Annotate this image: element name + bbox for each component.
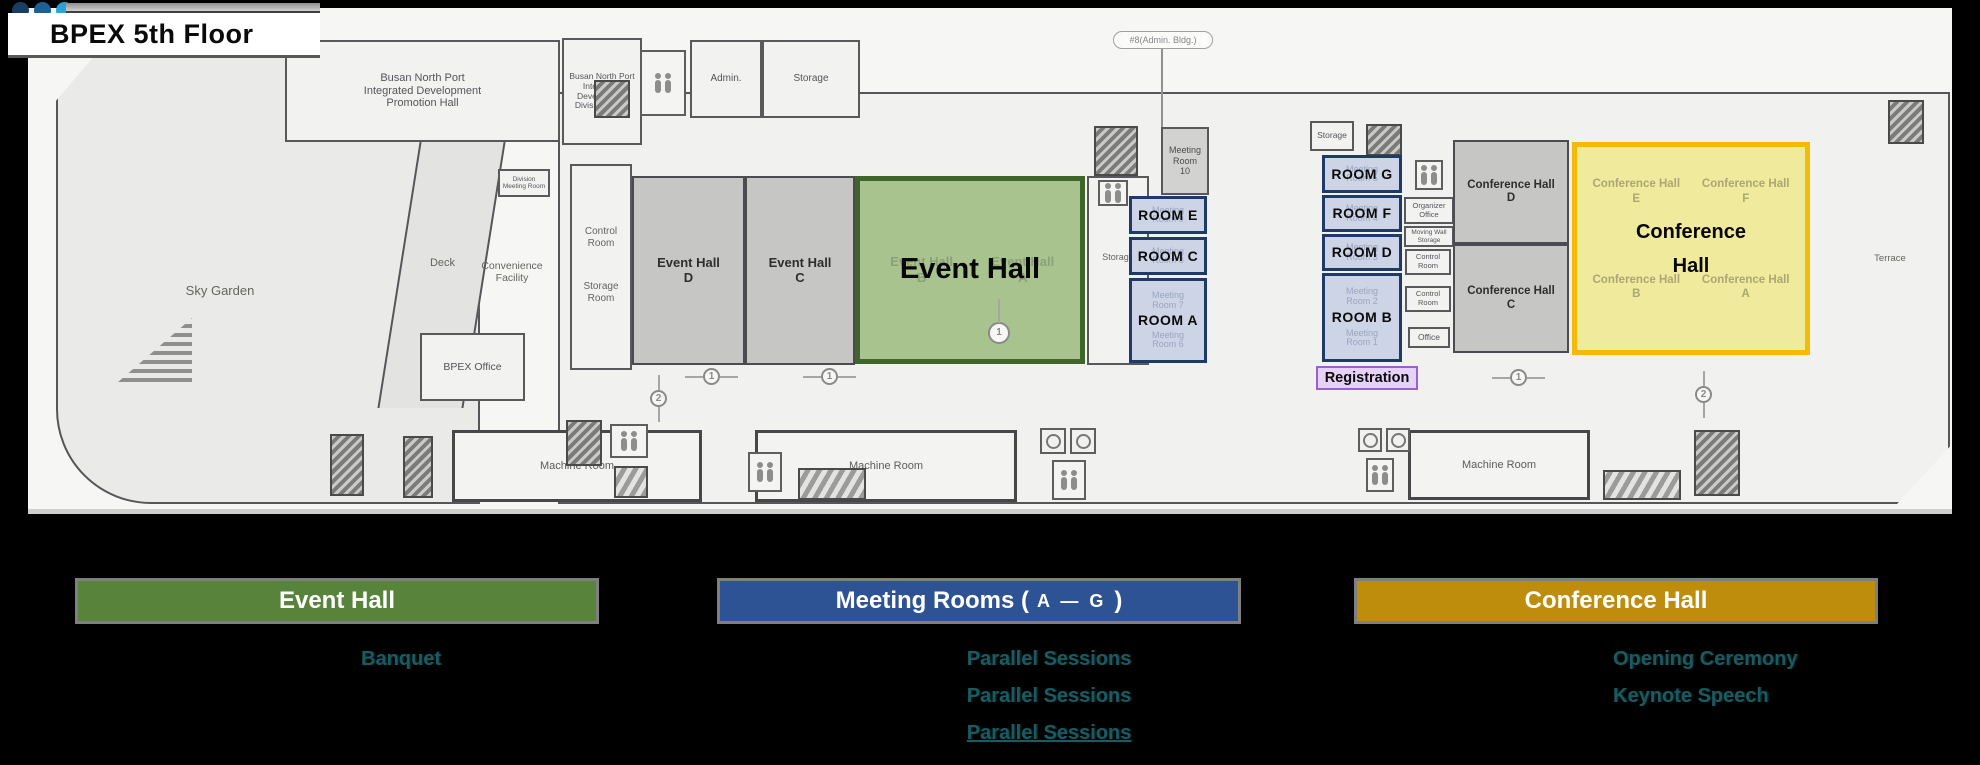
legend-bar-range: A — G <box>1037 591 1106 612</box>
machine-room-3: Machine Room <box>1408 430 1590 500</box>
legend-note: Parallel Sessions <box>787 683 1311 710</box>
page-title-text: BPEX 5th Floor <box>50 19 254 50</box>
legend-bar-label-close: ) <box>1114 587 1122 615</box>
event-hall-c: Event HallC <box>745 176 855 365</box>
stairs-icon <box>330 434 364 496</box>
legend-bar-label: Event Hall <box>279 587 395 615</box>
wheelchair-icon <box>1040 428 1066 454</box>
stairs-icon <box>403 436 433 498</box>
promotion-hall: Busan North PortIntegrated DevelopmentPr… <box>285 40 560 142</box>
legend-note: Opening Ceremony <box>1613 646 1878 673</box>
office-small: Office <box>1408 327 1450 348</box>
restroom-icon <box>610 424 648 458</box>
room-a-overlay: Meeting Room 7Meeting Room 6ROOM A <box>1129 278 1207 363</box>
room-g-overlay: Meeting Room 5ROOM G <box>1322 155 1402 193</box>
slide: Busan North PortIntegrated DevelopmentPr… <box>0 0 1980 765</box>
legend-note: Parallel Sessions <box>787 720 1311 747</box>
meeting-room-10: MeetingRoom10 <box>1161 127 1209 195</box>
restroom-icon <box>1052 460 1086 500</box>
room-b-overlay: Meeting Room 2Meeting Room 1ROOM B <box>1322 273 1402 362</box>
conference-hall-overlay: Conference HallEConference HallFConferen… <box>1572 142 1810 355</box>
terrace-label: Terrace <box>1855 254 1925 265</box>
room-e-overlay: Meeting Room 9ROOM E <box>1129 196 1207 234</box>
registration-overlay: Registration <box>1316 366 1418 390</box>
wheelchair-icon <box>1070 428 1096 454</box>
sky-garden-label: Sky Garden <box>160 284 280 299</box>
wheelchair-icon <box>1358 428 1382 452</box>
stairs-icon <box>1694 430 1740 496</box>
admin-bldg-callout: #8(Admin. Bldg.) <box>1113 31 1213 49</box>
conference-hall-d: Conference HallD <box>1453 140 1569 244</box>
legend-note: Keynote Speech <box>1613 683 1878 710</box>
legend-notes-meeting-rooms: Parallel SessionsParallel SessionsParall… <box>787 646 1311 747</box>
stairs-icon <box>594 80 630 118</box>
restroom-icon <box>640 50 686 116</box>
storage-room-top: Storage <box>762 40 860 118</box>
legend-note: Banquet <box>139 646 663 673</box>
admin-room: Admin. <box>690 40 762 118</box>
overlay-main-label: ConferenceHall <box>1577 147 1805 350</box>
legend-bar-conference-hall: Conference Hall <box>1354 578 1878 624</box>
restroom-icon <box>1366 458 1394 492</box>
event-hall-overlay: Event HallBEvent HallAEvent Hall <box>855 176 1085 364</box>
organizer-office: OrganizerOffice <box>1404 197 1454 224</box>
callout-line <box>1161 49 1163 128</box>
division-meeting-room: DivisionMeeting Room <box>498 169 550 197</box>
stairs-icon <box>1366 124 1402 156</box>
restroom-icon <box>748 452 782 492</box>
legend-conference-hall: Conference Hall Opening CeremonyKeynote … <box>1354 578 1878 710</box>
storage-small: Storage <box>1310 121 1354 151</box>
escalator-icon <box>798 468 866 500</box>
room-c-overlay: Meeting Room 8ROOM C <box>1129 237 1207 275</box>
elevator-icon <box>566 420 602 466</box>
machine-room-2: Machine Room <box>755 430 1017 502</box>
room-f-overlay: Meeting Room 4ROOM F <box>1322 195 1402 232</box>
legend-event-hall: Event Hall Banquet <box>75 578 599 673</box>
bpex-office: BPEX Office <box>420 333 525 401</box>
convenience-facility-label: ConvenienceFacility <box>462 260 562 284</box>
corridor-marker-2: 2 <box>1695 386 1712 403</box>
stairs-icon <box>1094 126 1138 176</box>
stairs-icon <box>1888 100 1924 144</box>
title-accent-bar <box>66 3 320 13</box>
control-storage-block <box>570 164 632 370</box>
room-d-overlay: Meeting Room 3ROOM D <box>1322 234 1402 271</box>
restroom-icon <box>1415 160 1443 190</box>
corridor-marker-1: 1 <box>821 368 838 385</box>
legend-bar-meeting-rooms: Meeting Rooms ( A — G ) <box>717 578 1241 624</box>
corridor-marker-1: 1 <box>1510 369 1527 386</box>
legend-bar-label: Meeting Rooms ( <box>836 587 1029 615</box>
event-hall-d: Event HallD <box>632 176 745 365</box>
corridor-marker-2: 2 <box>650 390 667 407</box>
legend-meeting-rooms: Meeting Rooms ( A — G ) Parallel Session… <box>717 578 1241 747</box>
elevator-icon <box>1098 180 1128 206</box>
escalator-icon <box>1603 470 1681 500</box>
control-room-label: ControlRoom <box>572 226 630 249</box>
legend-notes-event-hall: Banquet <box>139 646 663 673</box>
wheelchair-icon <box>1386 428 1410 452</box>
conference-hall-c: Conference HallC <box>1453 244 1569 353</box>
legend-note: Parallel Sessions <box>787 646 1311 673</box>
legend-bar-event-hall: Event Hall <box>75 578 599 624</box>
storage-room-label: StorageRoom <box>572 281 630 304</box>
overlay-main-label: Event Hall <box>860 181 1080 359</box>
legend-bar-label: Conference Hall <box>1525 587 1708 615</box>
control-room-a: ControlRoom <box>1405 249 1451 275</box>
corridor-marker-1: 1 <box>703 368 720 385</box>
moving-wall-storage: Moving WallStorage <box>1404 226 1454 247</box>
legend-notes-conference-hall: Opening CeremonyKeynote Speech <box>1354 646 1878 710</box>
escalator-icon <box>614 466 648 498</box>
page-title: BPEX 5th Floor <box>8 13 320 58</box>
control-room-b: ControlRoom <box>1405 286 1451 312</box>
